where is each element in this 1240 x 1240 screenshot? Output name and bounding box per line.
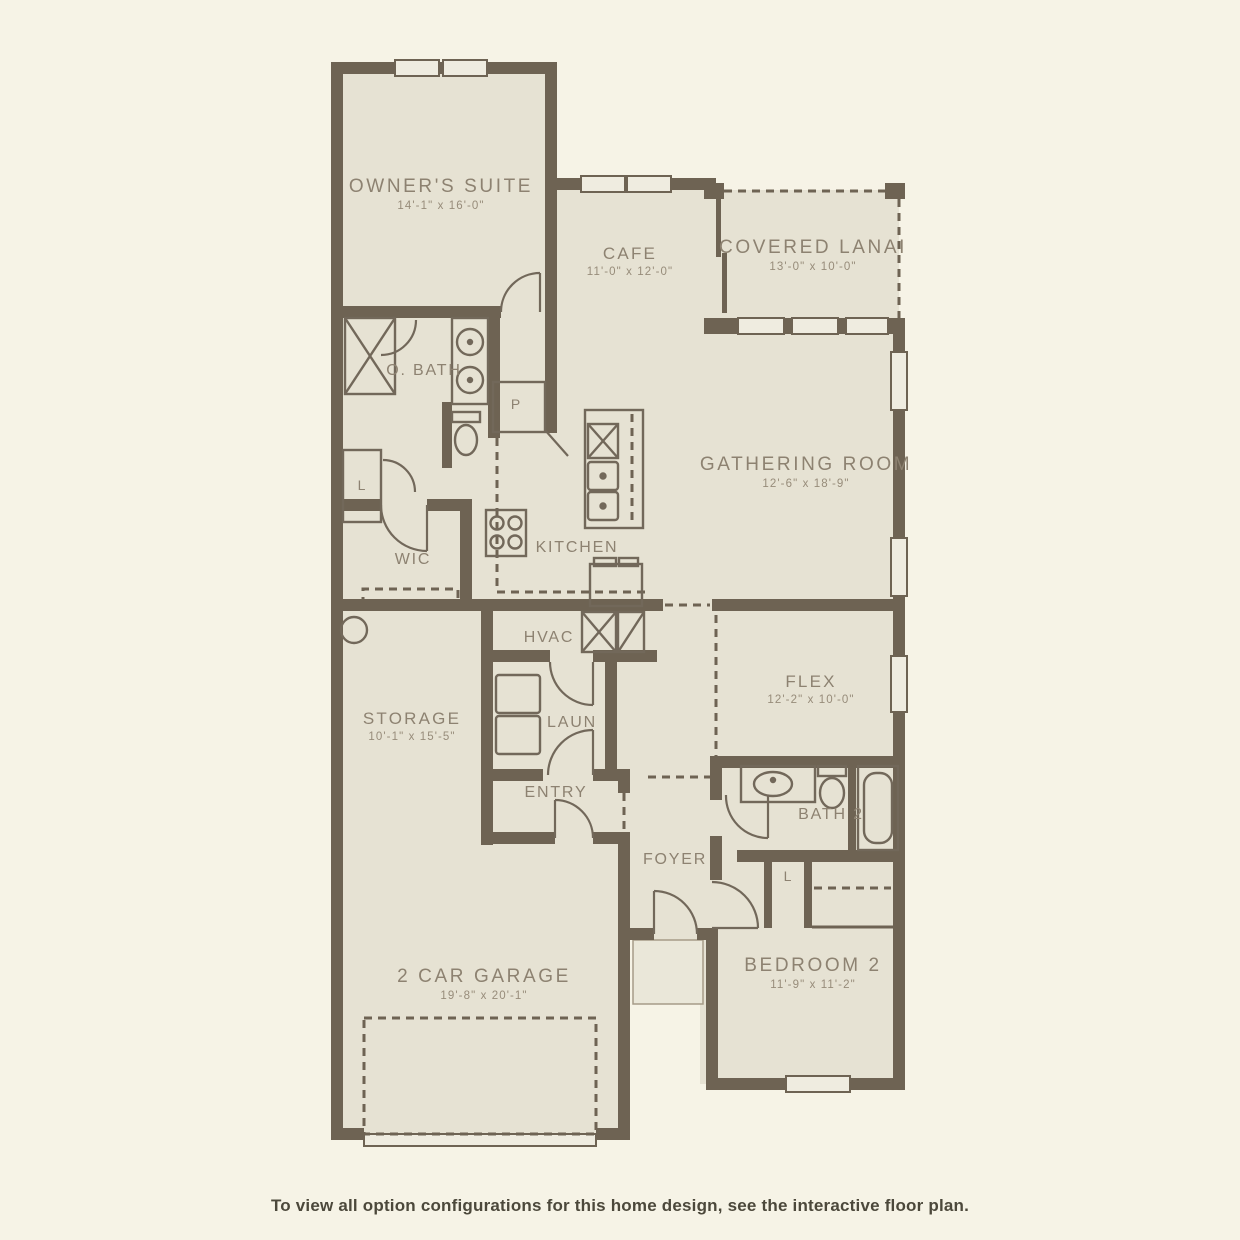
window-lanai-1 xyxy=(738,318,784,334)
window-bedroom-2 xyxy=(786,1076,850,1092)
window-lanai-3 xyxy=(846,318,888,334)
window-cafe-2 xyxy=(627,176,671,192)
window-owners-suite-1 xyxy=(395,60,439,76)
garage-door xyxy=(364,1134,596,1146)
floor-plan-page: OWNER'S SUITE 14'-1" x 16'-0" CAFE 11'-0… xyxy=(0,0,1240,1240)
window-gathering-2 xyxy=(891,538,907,596)
window-cafe-1 xyxy=(581,176,625,192)
caption: To view all option configurations for th… xyxy=(0,1196,1240,1216)
window-lanai-2 xyxy=(792,318,838,334)
floor-plan-graphic xyxy=(0,0,1240,1240)
window-gathering-1 xyxy=(891,352,907,410)
window-owners-suite-2 xyxy=(443,60,487,76)
window-flex xyxy=(891,656,907,712)
front-porch xyxy=(633,940,703,1004)
